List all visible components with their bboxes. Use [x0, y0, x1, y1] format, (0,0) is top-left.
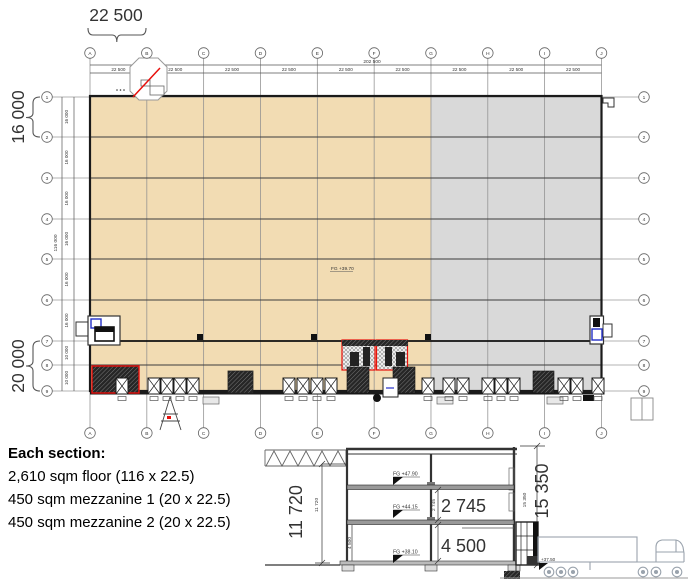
- grid-row-left-label: 9: [46, 389, 49, 395]
- grid-row-left-label: 5: [46, 257, 49, 263]
- bay-depth-dim-lower: 20 000: [8, 339, 28, 393]
- level-label-yard: +37.50: [541, 557, 556, 562]
- bay-width-label: 22 500: [566, 67, 580, 72]
- dock-door: [174, 378, 186, 401]
- overall-bay-width-dim: 22 500: [89, 5, 143, 25]
- dock-door: [187, 378, 199, 401]
- warehouse-hall-gray-area: [431, 96, 602, 391]
- plant-room-mid-left: [228, 371, 253, 393]
- dock-bumper: [459, 397, 467, 401]
- grid-column-top-label: C: [202, 51, 206, 57]
- mezzanine-1-slab: [347, 520, 514, 525]
- row-depth-label: 16 000: [64, 232, 69, 246]
- cross-section: 11 720 15 350 2 745 4 500 11 720 15 350 …: [265, 443, 688, 579]
- dock-door: [457, 378, 469, 401]
- grid-row-right-label: 3: [643, 176, 646, 182]
- row-depth-label: 16 000: [64, 191, 69, 205]
- ground-clear-height-dim: 4 500: [441, 536, 486, 556]
- grid-column-top-label: B: [145, 51, 148, 57]
- bay-width-label: 22 500: [509, 67, 523, 72]
- plant-room-center-a: [347, 367, 369, 393]
- notes-floor-area: 2,610 sqm floor (116 x 22.5): [8, 465, 231, 488]
- dock-door: [495, 378, 507, 401]
- notes-mezzanine-2: 450 sqm mezzanine 2 (20 x 22.5): [8, 511, 231, 534]
- dock-bumper: [285, 397, 293, 401]
- row-depth-label: 16 000: [64, 272, 69, 286]
- dock-bumper: [497, 397, 505, 401]
- grid-row-right-label: 7: [643, 339, 646, 345]
- plant-room-right: [533, 371, 554, 393]
- row-depth-label: 16 000: [64, 150, 69, 164]
- grid-column-bottom-label: H: [486, 431, 490, 437]
- row-depth-label: 10 000: [64, 346, 69, 360]
- dock-bumper: [510, 397, 518, 401]
- dock-bumper: [573, 397, 581, 401]
- dock-door: [161, 378, 173, 401]
- grid-row-right-label: 5: [643, 257, 646, 263]
- bollard: [373, 394, 381, 402]
- grid-row-right-label: 6: [643, 298, 646, 304]
- section-height-dim-left: 11 720: [286, 485, 306, 539]
- dock-bumper: [150, 397, 158, 401]
- truck: [538, 537, 684, 577]
- bay-width-label: 22 500: [282, 67, 296, 72]
- mezzanine-clear-height-dim: 2 745: [441, 496, 486, 516]
- dock-door: [297, 378, 309, 401]
- grid-row-right-label: 9: [643, 389, 646, 395]
- grid-column-top-label: I: [544, 51, 545, 57]
- grid-row-left-label: 2: [46, 135, 49, 141]
- small-dim-mezz: 2 745: [431, 499, 437, 511]
- grid-column-bottom-label: G: [429, 431, 433, 437]
- dock-bumper: [594, 397, 602, 401]
- loading-dock: [462, 522, 688, 579]
- dock-bumper: [176, 397, 184, 401]
- grid-row-right-label: 1: [643, 95, 646, 101]
- floor-level-label: FG +39.70: [331, 266, 354, 272]
- grid-column-bottom-label: F: [373, 431, 376, 437]
- grid-column-bottom-label: I: [544, 431, 545, 437]
- dock-leveler: [203, 397, 219, 404]
- external-ramp: [160, 397, 181, 430]
- dock-door: [592, 378, 604, 401]
- grid-column-top-label: D: [259, 51, 263, 57]
- dock-door: [558, 378, 570, 401]
- grid-row-right-label: 4: [643, 217, 646, 223]
- dock-door: [571, 378, 583, 401]
- bay-width-label: 22 500: [111, 67, 125, 72]
- overall-depth-dim: 116 000: [53, 234, 59, 251]
- dock-door: [325, 378, 337, 401]
- level-label-floor: FG +38.10: [393, 550, 418, 556]
- dock-door: [116, 378, 128, 401]
- small-dim-right: 15 350: [522, 492, 528, 507]
- mezzanine-2-slab: [347, 485, 514, 490]
- bay-width-label: 22 500: [225, 67, 239, 72]
- row-depth-label: 16 000: [64, 313, 69, 327]
- grid-column-bottom-label: C: [202, 431, 206, 437]
- central-office-mezzanine: [342, 340, 408, 370]
- grid-column-bottom-label: E: [316, 431, 319, 437]
- grid-column-top-label: H: [486, 51, 490, 57]
- row-depth-label: 16 000: [64, 110, 69, 124]
- grid-row-left-label: 3: [46, 176, 49, 182]
- grid-row-left-label: 7: [46, 339, 49, 345]
- bay-width-label: 22 500: [396, 67, 410, 72]
- small-dim-left: 11 720: [314, 498, 320, 513]
- grid-row-left-label: 4: [46, 217, 49, 223]
- grid-column-bottom-label: D: [259, 431, 263, 437]
- corner-detail-flag: [603, 98, 614, 107]
- row-depth-label: 10 000: [64, 371, 69, 385]
- notes-mezzanine-1: 450 sqm mezzanine 1 (20 x 22.5): [8, 488, 231, 511]
- grid-column-top-label: G: [429, 51, 433, 57]
- grid-row-left-label: 8: [46, 363, 49, 369]
- section-height-dim-right: 15 350: [532, 463, 552, 518]
- small-dim-ground: 4 500: [347, 537, 353, 549]
- dock-bumper: [327, 397, 335, 401]
- interior-column: [311, 334, 317, 340]
- grid-row-right-label: 2: [643, 135, 646, 141]
- stair-core-right: [590, 316, 612, 344]
- dock-bumper: [299, 397, 307, 401]
- dock-door: [508, 378, 520, 401]
- grid-row-left-label: 1: [46, 95, 49, 101]
- ground-slab: [340, 561, 520, 565]
- grid-column-top-label: F: [373, 51, 376, 57]
- level-label-mezz: FG +44.15: [393, 505, 418, 511]
- dock-door: [148, 378, 160, 401]
- grid-column-bottom-label: B: [145, 431, 148, 437]
- dock-door: [283, 378, 295, 401]
- bay-depth-dim-upper: 16 000: [8, 90, 28, 144]
- notes-title: Each section:: [8, 442, 231, 465]
- grid-column-top-label: E: [316, 51, 319, 57]
- bay-width-label: 22 500: [339, 67, 353, 72]
- grid-row-left-label: 6: [46, 298, 49, 304]
- interior-column: [425, 334, 431, 340]
- dock-door: [422, 378, 434, 401]
- grid-row-right-label: 8: [643, 363, 646, 369]
- level-label-top: FG +47.90: [393, 472, 418, 478]
- drawing-sheet: AABBCCDDEEFFGGHHIIJJ11223344556677889922…: [0, 0, 688, 582]
- dock-bumper: [189, 397, 197, 401]
- bay-width-label: 22 500: [168, 67, 182, 72]
- section-notes: Each section: 2,610 sqm floor (116 x 22.…: [8, 442, 231, 534]
- overall-width-dim: 202 500: [363, 59, 381, 65]
- interior-column: [197, 334, 203, 340]
- dock-bumper: [118, 397, 126, 401]
- roof-truss: [265, 450, 346, 466]
- bay-width-label: 22 500: [452, 67, 466, 72]
